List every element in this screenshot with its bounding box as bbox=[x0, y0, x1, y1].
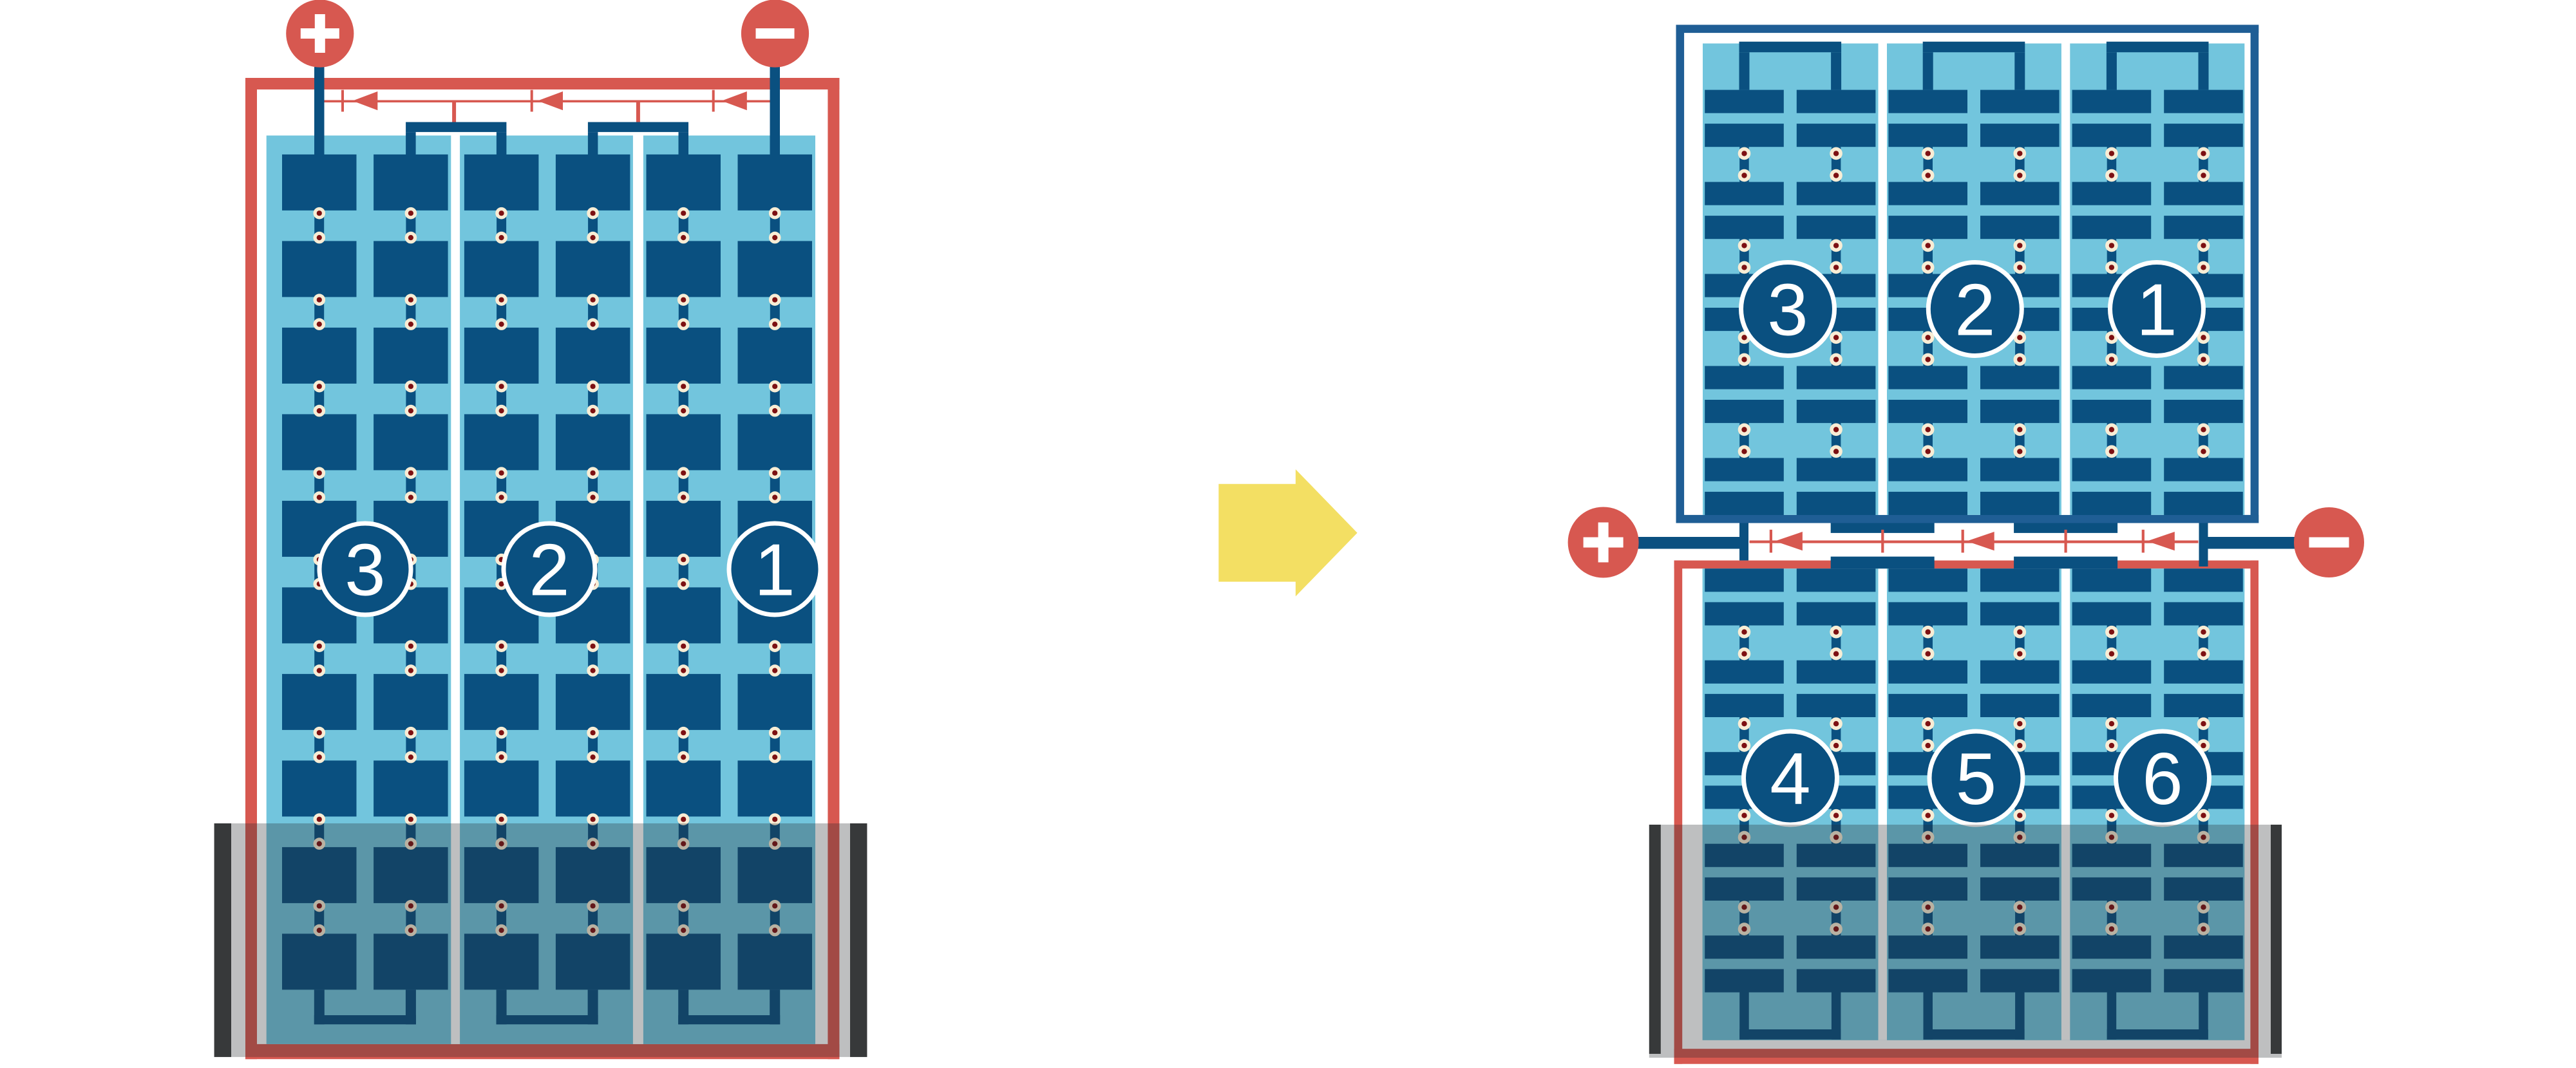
svg-text:5: 5 bbox=[1956, 738, 1996, 820]
svg-text:1: 1 bbox=[2136, 270, 2177, 351]
svg-text:2: 2 bbox=[529, 530, 569, 612]
svg-text:6: 6 bbox=[2142, 738, 2183, 820]
svg-text:3: 3 bbox=[345, 530, 385, 612]
svg-text:4: 4 bbox=[1770, 738, 1810, 820]
svg-text:1: 1 bbox=[754, 530, 795, 612]
svg-text:3: 3 bbox=[1767, 270, 1808, 351]
svg-text:2: 2 bbox=[1955, 270, 1995, 351]
